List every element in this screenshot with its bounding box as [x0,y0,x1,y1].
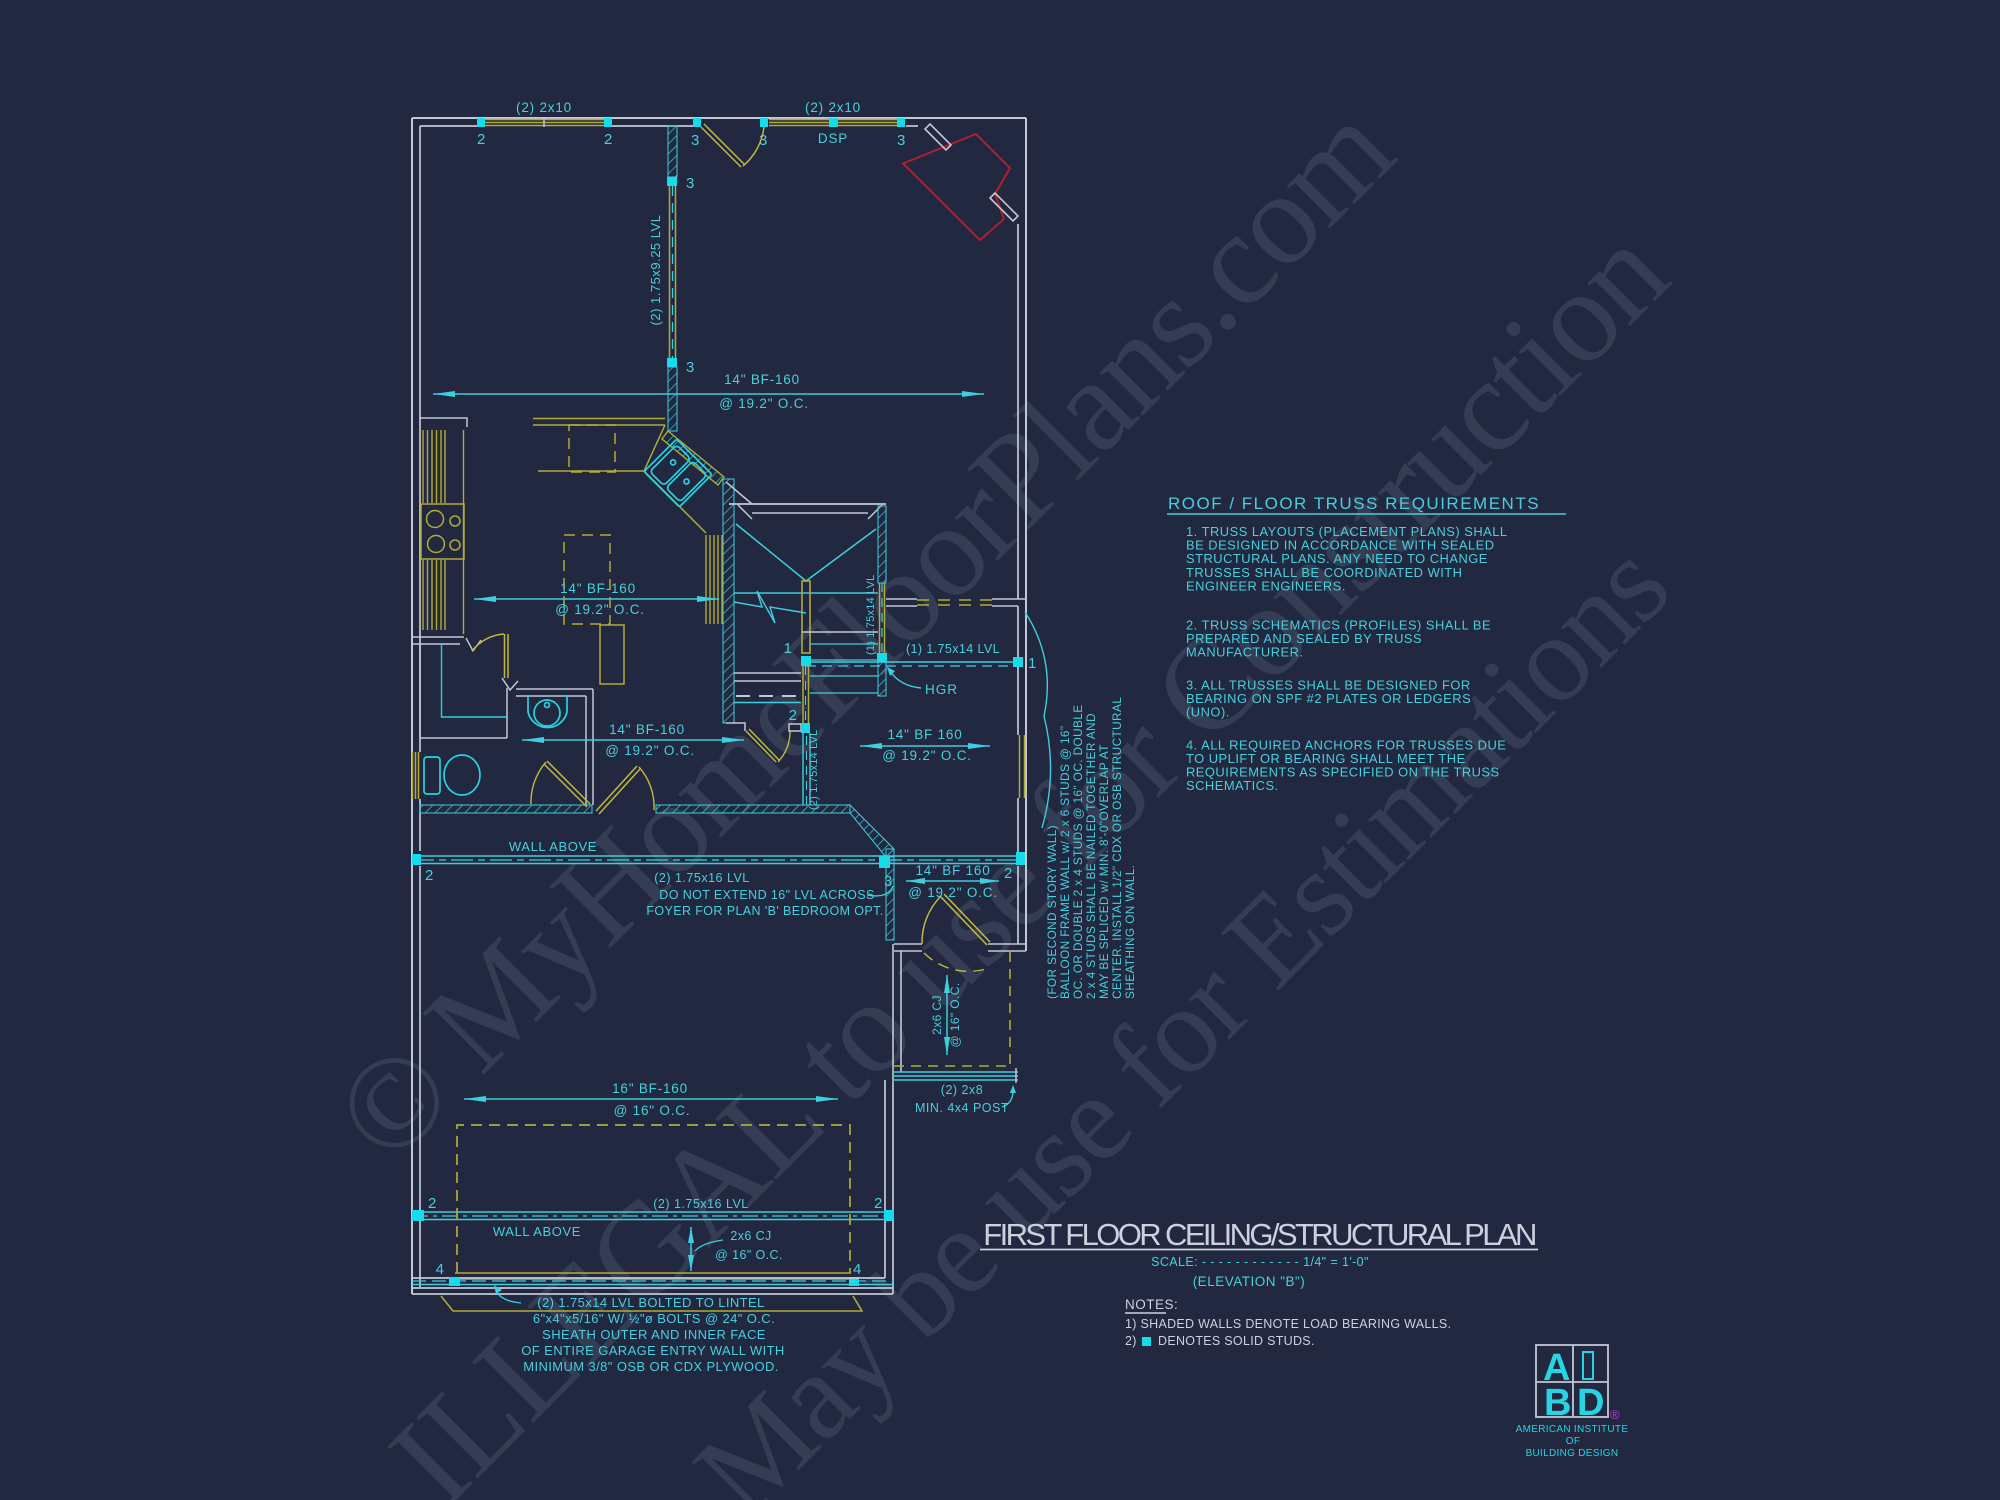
svg-text:SHEATHING ON WALL.: SHEATHING ON WALL. [1123,865,1137,999]
svg-text:HGR: HGR [925,682,958,697]
svg-text:OC. OR DOUBLE 2 x 4 STUDS @ 16: OC. OR DOUBLE 2 x 4 STUDS @ 16" OC. DOUB… [1071,704,1085,999]
svg-text:DENOTES SOLID STUDS.: DENOTES SOLID STUDS. [1158,1334,1315,1348]
svg-text:DO NOT EXTEND 16" LVL ACROSS: DO NOT EXTEND 16" LVL ACROSS [659,888,874,902]
svg-text:CENTER. INSTALL 1/2" CDX OR OS: CENTER. INSTALL 1/2" CDX OR OSB STRUCTUR… [1110,697,1124,999]
svg-text:OF: OF [1566,1436,1581,1447]
svg-text:14" BF-160: 14" BF-160 [560,581,636,596]
svg-text:(2) 2x10: (2) 2x10 [805,100,861,115]
svg-text:@ 19.2" O.C.: @ 19.2" O.C. [605,743,695,758]
svg-text:(2) 1.75x9.25 LVL: (2) 1.75x9.25 LVL [648,215,663,326]
svg-text:2: 2 [477,131,485,148]
svg-text:3: 3 [686,175,694,192]
svg-text:DSP: DSP [818,131,848,146]
svg-text:1: 1 [1028,655,1036,672]
svg-text:B: B [1544,1382,1571,1424]
svg-text:(2) 1.75x14 LVL BOLTED TO LINT: (2) 1.75x14 LVL BOLTED TO LINTEL [537,1295,764,1310]
svg-text:14" BF-160: 14" BF-160 [609,722,685,737]
svg-text:2): 2) [1125,1334,1137,1348]
svg-text:(2) 2x8: (2) 2x8 [941,1083,983,1097]
svg-text:FOYER FOR PLAN 'B' BEDROOM OPT: FOYER FOR PLAN 'B' BEDROOM OPT. [646,904,883,918]
svg-text:3: 3 [691,132,699,149]
svg-text:@ 19.2" O.C.: @ 19.2" O.C. [908,885,998,900]
svg-text:1: 1 [784,640,792,657]
svg-text:14" BF-160: 14" BF-160 [724,372,800,387]
svg-text:BALLOON FRAME WALL w/ 2 x 6 ST: BALLOON FRAME WALL w/ 2 x 6 STUDS @ 16" [1058,726,1072,999]
svg-text:@ 16" O.C.: @ 16" O.C. [715,1248,783,1262]
svg-text:2: 2 [425,867,433,884]
svg-text:2: 2 [428,1195,436,1212]
svg-text:@ 16" O.C.: @ 16" O.C. [614,1103,691,1118]
svg-text:2: 2 [789,707,797,724]
svg-text:2x6 CJ: 2x6 CJ [730,1229,771,1243]
svg-text:ROOF / FLOOR TRUSS REQUIREMEN: ROOF / FLOOR TRUSS REQUIREMENTS [1168,494,1540,513]
svg-text:MAY BE SPLICED w/ MIN. 8'-0"OV: MAY BE SPLICED w/ MIN. 8'-0"OVERLAP AT [1097,744,1111,999]
svg-text:4: 4 [853,1261,861,1278]
svg-text:FIRST FLOOR CEILING/STRUCTURAL: FIRST FLOOR CEILING/STRUCTURAL PLAN [983,1217,1535,1252]
svg-text:(2) 1.75x16 LVL: (2) 1.75x16 LVL [653,1197,749,1211]
svg-text:D: D [1577,1382,1604,1424]
svg-text:ENGINEER ENGINEERS.: ENGINEER ENGINEERS. [1186,578,1346,593]
svg-text:SCALE: - - - - - - - - - - -: SCALE: - - - - - - - - - - - - 1/4" = 1'… [1151,1255,1369,1269]
svg-text:1) SHADED WALLS DENOTE LOAD BE: 1) SHADED WALLS DENOTE LOAD BEARING WALL… [1125,1317,1451,1331]
svg-text:(1) 1.75x14 LVL: (1) 1.75x14 LVL [865,575,877,655]
svg-text:4: 4 [436,1261,444,1278]
svg-text:(2) 1.75x14 LVL: (2) 1.75x14 LVL [808,730,820,810]
svg-text:SCHEMATICS.: SCHEMATICS. [1186,778,1279,793]
svg-text:2: 2 [604,131,612,148]
svg-text:(FOR SECOND STORY WALL): (FOR SECOND STORY WALL) [1045,825,1059,999]
svg-text:3: 3 [686,359,694,376]
svg-text:3: 3 [897,132,905,149]
svg-text:(1) 1.75x14 LVL: (1) 1.75x14 LVL [906,642,1000,656]
svg-text:2: 2 [1004,865,1012,882]
svg-text:14" BF 160: 14" BF 160 [915,863,990,878]
svg-text:@ 19.2" O.C.: @ 19.2" O.C. [719,396,809,411]
svg-text:2x6 CJ: 2x6 CJ [930,995,944,1035]
svg-text:MINIMUM 3/8" OSB OR CDX PLYWOO: MINIMUM 3/8" OSB OR CDX PLYWOOD. [523,1359,779,1374]
svg-text:@ 19.2" O.C.: @ 19.2" O.C. [555,602,645,617]
svg-text:(UNO).: (UNO). [1186,705,1230,720]
svg-text:BUILDING DESIGN: BUILDING DESIGN [1526,1448,1619,1459]
svg-text:AMERICAN INSTITUTE: AMERICAN INSTITUTE [1516,1424,1629,1435]
svg-text:(2) 1.75x16 LVL: (2) 1.75x16 LVL [654,871,750,885]
svg-text:14" BF 160: 14" BF 160 [887,727,962,742]
svg-text:2 x 4 STUDS SHALL BE NAILED TO: 2 x 4 STUDS SHALL BE NAILED TOGETHER AND [1084,713,1098,999]
svg-text:(2) 2x10: (2) 2x10 [516,100,572,115]
svg-text:OF ENTIRE GARAGE ENTRY WALL WI: OF ENTIRE GARAGE ENTRY WALL WITH [521,1343,784,1358]
svg-text:(ELEVATION "B"): (ELEVATION "B") [1193,1274,1306,1289]
svg-text:@ 16" O.C.: @ 16" O.C. [948,982,962,1047]
svg-text:@ 19.2" O.C.: @ 19.2" O.C. [882,748,972,763]
svg-text:MANUFACTURER.: MANUFACTURER. [1186,645,1304,660]
svg-text:6"x4"x5/16" W/ ½"ø BOLTS @ 24": 6"x4"x5/16" W/ ½"ø BOLTS @ 24" O.C. [533,1311,775,1326]
svg-text:SHEATH OUTER AND INNER FACE: SHEATH OUTER AND INNER FACE [542,1327,766,1342]
svg-text:WALL ABOVE: WALL ABOVE [509,839,597,854]
svg-text:16" BF-160: 16" BF-160 [612,1081,688,1096]
svg-text:MIN. 4x4 POST: MIN. 4x4 POST [915,1101,1009,1115]
svg-text:®: ® [1610,1407,1620,1422]
svg-text:NOTES:: NOTES: [1125,1297,1178,1312]
svg-text:2: 2 [874,1195,882,1212]
svg-text:WALL ABOVE: WALL ABOVE [493,1224,581,1239]
